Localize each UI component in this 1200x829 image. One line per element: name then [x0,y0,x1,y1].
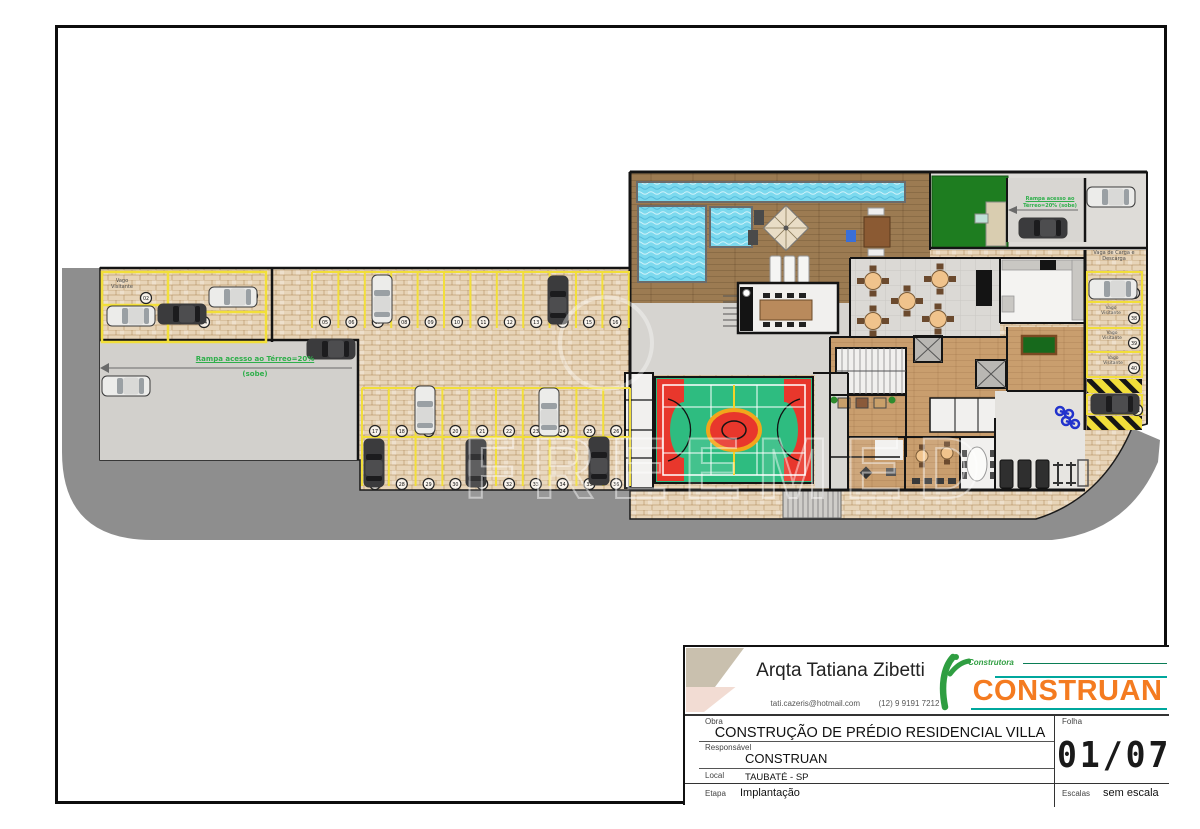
car [1091,394,1139,414]
folha-value: 01/07 [1057,733,1165,775]
construan-logo: Construtora CONSTRUAN [935,653,1168,711]
parking-number: 40 [1129,363,1140,374]
parking-number: 32 [504,479,515,490]
main-pool [638,206,706,282]
parking-number: 17 [370,426,381,437]
svg-text:33: 33 [533,482,539,488]
svg-text:21: 21 [479,429,485,435]
dining-table [760,300,812,320]
logo-rule [971,708,1167,710]
parking-number: 29 [423,479,434,490]
svg-text:10: 10 [454,320,460,326]
svg-text:08: 08 [401,320,407,326]
parking-number: 05 [320,317,331,328]
etapa-value: Implantação [740,787,800,799]
pool-table [1022,336,1056,354]
svg-text:20: 20 [452,429,458,435]
svg-text:06: 06 [348,320,354,326]
playground-slide [975,214,988,223]
car [589,437,609,485]
svg-text:15: 15 [586,320,592,326]
svg-text:29: 29 [426,482,432,488]
car [209,287,257,307]
parking-number: 09 [425,317,436,328]
car [1089,279,1137,299]
svg-text:23: 23 [533,429,539,435]
kids-pool [710,207,752,247]
parking-number: 06 [346,317,357,328]
car [548,276,568,324]
car [539,388,559,436]
water-cooler [846,230,856,242]
parking-number: 38 [1129,313,1140,324]
gourmet-room [738,283,838,333]
parking-number: 13 [531,317,542,328]
car [107,306,155,326]
parking-number: 18 [396,426,407,437]
deck-table [864,217,890,247]
svg-text:38: 38 [1131,316,1137,322]
car [102,376,150,396]
parking-number: 39 [1129,338,1140,349]
lap-pool [637,182,905,202]
architect-phone: (12) 9 9191 7212 [879,699,940,708]
sun-loungers [770,256,809,283]
ramp-right-label2: Térreo=20% (sobe) [1018,203,1082,209]
svg-text:02: 02 [143,296,149,302]
svg-text:09: 09 [428,320,434,326]
parking-number: 33 [530,479,541,490]
svg-text:26: 26 [613,429,619,435]
svg-text:32: 32 [506,482,512,488]
ramp-left-label: Rampa acesso ao Térreo=20% [155,355,355,363]
no-parking-hatch [1087,379,1142,393]
court-steps [783,490,841,518]
loading-spot-label: Vaga de Carga e Descarga [1089,250,1139,262]
svg-text:11: 11 [480,320,486,326]
bathrooms [930,398,1002,432]
svg-text:22: 22 [506,429,512,435]
car [1087,187,1135,207]
parking-number: 30 [450,479,461,490]
svg-text:40: 40 [1131,366,1137,372]
parking-number: 34 [557,479,568,490]
parking-number: 12 [504,317,515,328]
svg-text:13: 13 [533,320,539,326]
parking-number: 25 [584,426,595,437]
drawing-sheet-page: 0506070809101112131415161718192021222324… [0,0,1200,829]
treadmill [1000,460,1049,488]
visitor-spot-label: Vago Visitante [1097,356,1129,367]
sports-court [655,377,813,483]
svg-text:18: 18 [399,429,405,435]
local-value: TAUBATÉ - SP [745,772,809,783]
svg-text:34: 34 [560,482,566,488]
architect-name: Arqta Tatiana Zibetti [723,660,958,682]
architect-email: tati.cazeris@hotmail.com [771,699,860,708]
folha-label: Folha [1062,717,1082,726]
parking-number: 26 [611,426,622,437]
svg-text:30: 30 [452,482,458,488]
ramp-left-label2: (sobe) [155,370,355,378]
escalas-value: sem escala [1103,787,1159,799]
parking-number: 16 [610,317,621,328]
visitor-spot-label: Vago Visitante [1096,331,1128,342]
car [158,304,206,324]
responsavel-value: CONSTRUAN [745,751,827,766]
parking-number: 11 [478,317,489,328]
svg-text:39: 39 [1131,341,1137,347]
parking-number: 02 [141,293,152,304]
obra-value: CONSTRUÇÃO DE PRÉDIO RESIDENCIAL VILLA [713,725,1047,741]
svg-text:12: 12 [507,320,513,326]
etapa-label: Etapa [705,789,726,798]
svg-text:36: 36 [613,482,619,488]
parking-number: 28 [396,479,407,490]
svg-text:05: 05 [322,320,328,326]
visitor-spot-label: Vago Visitante [105,278,139,290]
car [466,439,486,487]
logo-brand: CONSTRUAN [967,675,1168,708]
svg-text:16: 16 [612,320,618,326]
local-label: Local [705,771,724,780]
logo-tagline: Construtora [968,658,1014,667]
stove [1040,260,1056,270]
escalas-label: Escalas [1062,789,1090,798]
logo-rule [1023,663,1167,664]
ramp-right-label: Rampa acesso ao [1018,196,1082,202]
parking-number: 21 [477,426,488,437]
deck-chair [748,230,758,245]
svg-text:17: 17 [372,429,378,435]
car [415,386,435,434]
parking-number: 15 [584,317,595,328]
parking-number: 22 [504,426,515,437]
visitor-spot-label: Vago Visitante [1095,306,1127,317]
parking-number: 08 [399,317,410,328]
lounge-chairs [831,397,896,409]
court-right-corridor [815,373,848,488]
car [372,275,392,323]
no-parking-hatch [1087,416,1142,430]
parking-number: 20 [450,426,461,437]
deck-chair [754,210,764,225]
bar-counter [976,270,992,306]
svg-text:28: 28 [399,482,405,488]
parking-number: 10 [452,317,463,328]
construan-logo-figure [935,653,971,711]
svg-text:25: 25 [586,429,592,435]
meeting-table [967,447,987,481]
car [1019,218,1067,238]
car [364,439,384,487]
parking-number: 36 [611,479,622,490]
title-block: Arqta Tatiana Zibetti tati.cazeris@hotma… [683,645,1169,805]
svg-text:24: 24 [560,429,566,435]
playground-equipment [986,202,1006,246]
